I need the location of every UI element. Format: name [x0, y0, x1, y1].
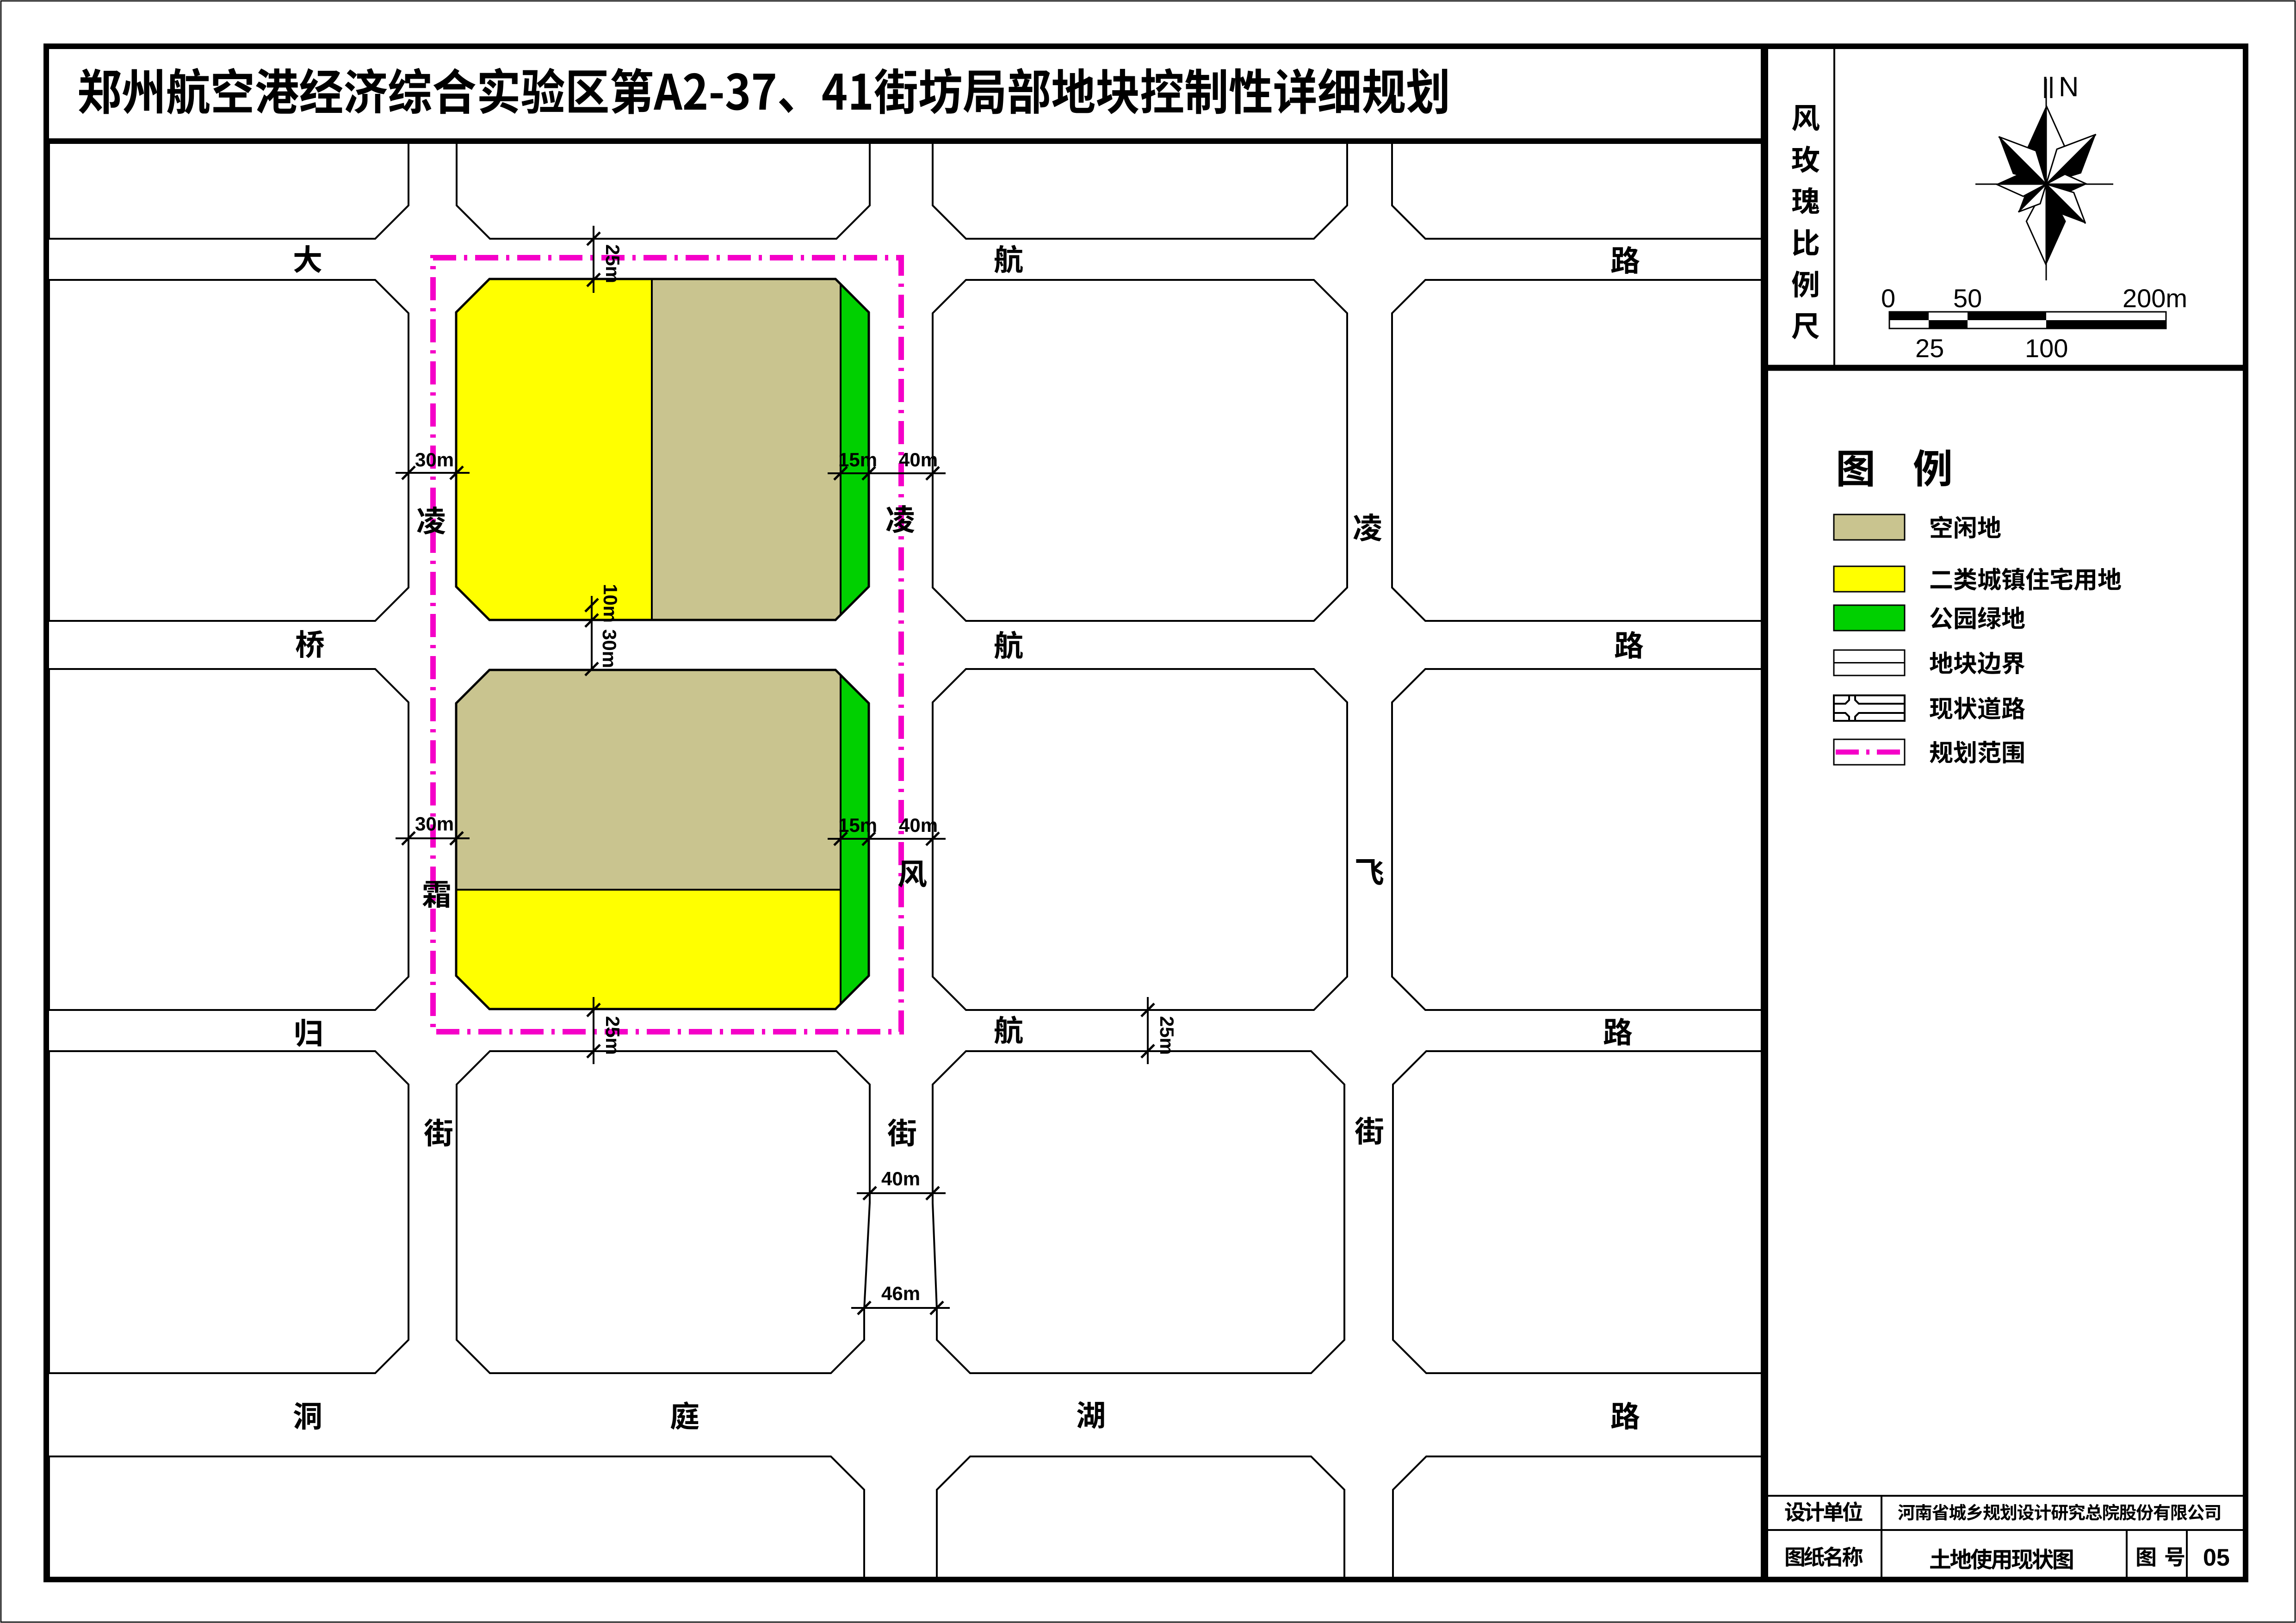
svg-text:200m: 200m — [2123, 284, 2187, 313]
svg-text:25: 25 — [1915, 334, 1944, 363]
svg-text:50: 50 — [1953, 284, 1982, 313]
svg-text:25m: 25m — [602, 244, 624, 283]
svg-text:30m: 30m — [415, 449, 454, 471]
svg-text:25m: 25m — [1156, 1016, 1178, 1055]
svg-text:40m: 40m — [881, 1168, 920, 1189]
svg-text:15m: 15m — [838, 449, 877, 471]
svg-text:100: 100 — [2025, 334, 2068, 363]
svg-text:15m: 15m — [838, 814, 877, 836]
svg-text:40m: 40m — [899, 814, 938, 836]
svg-text:05: 05 — [2203, 1544, 2230, 1571]
svg-text:N: N — [2059, 71, 2079, 102]
svg-text:25m: 25m — [602, 1016, 624, 1055]
svg-text:30m: 30m — [415, 813, 454, 835]
svg-text:0: 0 — [1881, 284, 1895, 313]
svg-text:30m: 30m — [599, 629, 620, 668]
svg-text:46m: 46m — [881, 1282, 920, 1304]
svg-text:10m: 10m — [600, 584, 621, 623]
svg-text:40m: 40m — [899, 449, 938, 471]
